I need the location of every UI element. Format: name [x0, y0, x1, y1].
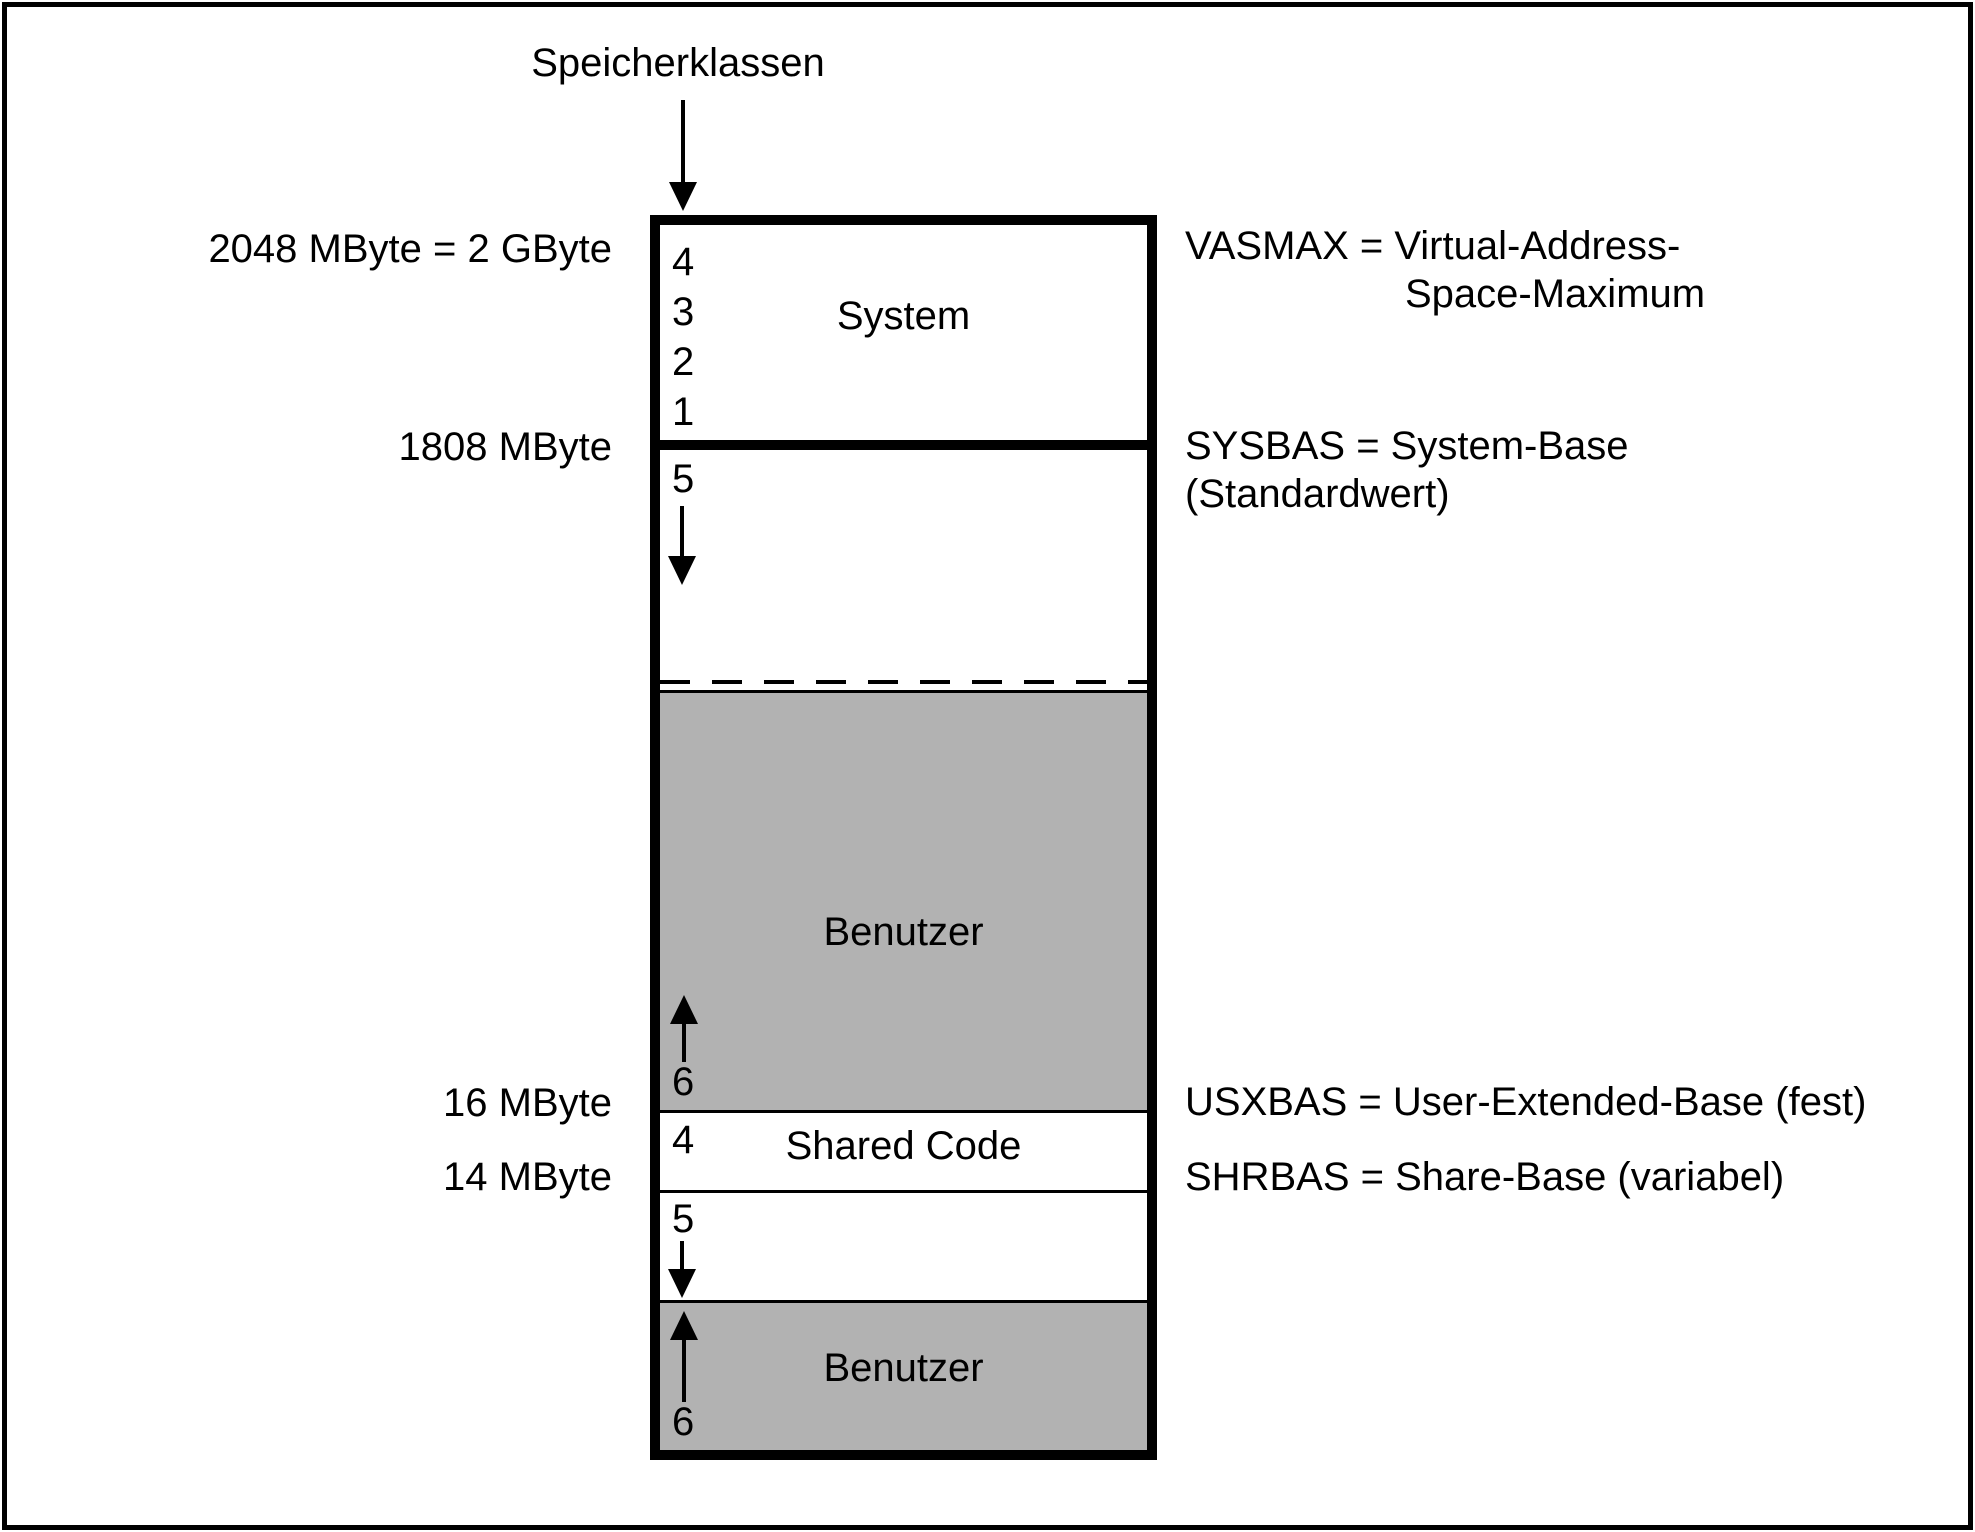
- section-label-benutzer: Benutzer: [660, 1345, 1147, 1391]
- right-label-sysbas-line1: SYSBAS = System-Base: [1185, 422, 1629, 470]
- left-label-1808-mbyte: 1808 MByte: [0, 424, 612, 470]
- arrow-head: [668, 556, 696, 585]
- class6-arrow-group: 6: [670, 995, 698, 1102]
- right-label-sysbas-line2: (Standardwert): [1185, 470, 1629, 518]
- arrow-head: [670, 1311, 698, 1340]
- section-label-shared-code: Shared Code: [660, 1123, 1147, 1169]
- diagram-canvas: Speicherklassen 2048 MByte = 2 GByte 180…: [0, 0, 1975, 1532]
- left-label-2048-mbyte: 2048 MByte = 2 GByte: [0, 226, 612, 272]
- left-label-14-mbyte: 14 MByte: [0, 1154, 612, 1200]
- up-arrow-icon: [670, 995, 698, 1062]
- left-label-16-mbyte: 16 MByte: [0, 1080, 612, 1126]
- memory-class-number: 4: [672, 237, 694, 287]
- memory-class-number: 5: [672, 458, 694, 500]
- section-shared-code: 4 Shared Code: [660, 1110, 1147, 1190]
- dashed-boundary-line: [660, 680, 1147, 684]
- memory-class-number: 6: [672, 1402, 694, 1442]
- section-system: 4 3 2 1 System: [660, 225, 1147, 440]
- right-label-vasmax: VASMAX = Virtual-Address- Space-Maximum: [1185, 222, 1705, 318]
- down-arrow-icon: [668, 1241, 696, 1298]
- memory-class-number: 2: [672, 337, 694, 387]
- right-label-shrbas: SHRBAS = Share-Base (variabel): [1185, 1153, 1784, 1201]
- right-label-sysbas: SYSBAS = System-Base (Standardwert): [1185, 422, 1629, 518]
- arrow-shaft: [682, 1340, 686, 1402]
- down-arrow-icon: [668, 506, 696, 585]
- title-down-arrow-icon: [669, 100, 697, 211]
- up-arrow-icon: [670, 1311, 698, 1402]
- memory-class-number: 1: [672, 387, 694, 437]
- sysbas-divider-line: [660, 440, 1147, 450]
- arrow-shaft: [680, 1241, 684, 1269]
- memory-class-number: 5: [672, 1198, 694, 1240]
- right-label-usxbas: USXBAS = User-Extended-Base (fest): [1185, 1078, 1866, 1126]
- section-benutzer-lower: Benutzer 6: [660, 1300, 1147, 1450]
- class6-arrow-group: 6: [670, 1311, 698, 1442]
- diagram-title: Speicherklassen: [478, 40, 878, 86]
- arrow-shaft: [681, 100, 685, 182]
- right-label-vasmax-line1: VASMAX = Virtual-Address-: [1185, 222, 1705, 270]
- section-label-system: System: [660, 293, 1147, 339]
- arrow-head: [670, 995, 698, 1024]
- memory-map: 4 3 2 1 System 5 Benutzer: [650, 215, 1157, 1460]
- section-class5-lower: 5: [660, 1190, 1147, 1300]
- arrow-shaft: [680, 506, 684, 556]
- section-benutzer-upper: Benutzer 6: [660, 690, 1147, 1110]
- section-class5-upper: 5: [660, 450, 1147, 690]
- arrow-head: [668, 1269, 696, 1298]
- section-label-benutzer: Benutzer: [660, 909, 1147, 955]
- arrow-head: [669, 182, 697, 211]
- arrow-shaft: [682, 1024, 686, 1062]
- right-label-vasmax-line2: Space-Maximum: [1185, 270, 1705, 318]
- memory-class-number: 6: [672, 1062, 694, 1102]
